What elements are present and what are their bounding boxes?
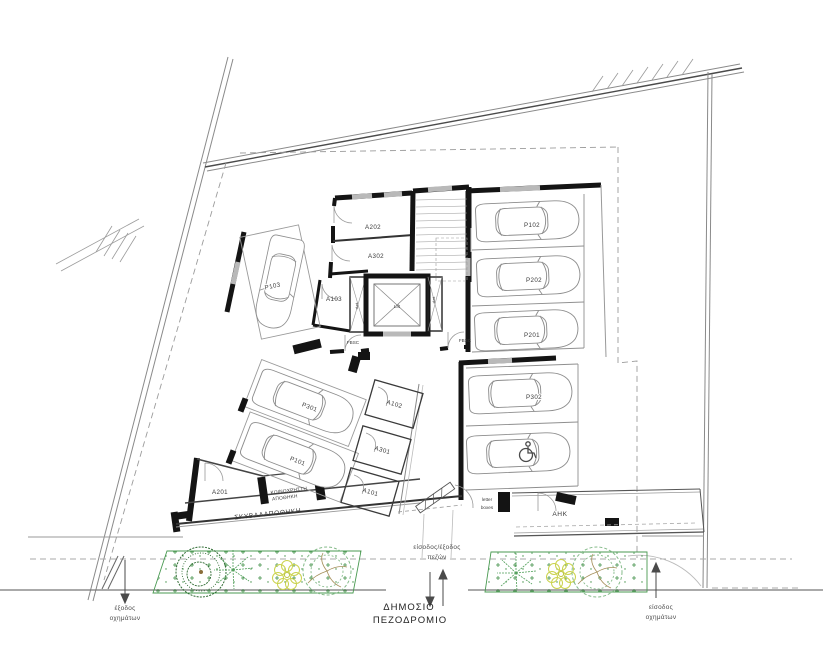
label-a102: A102 [386,399,404,410]
label-duct-right: duct [432,297,436,304]
label-p202: P202 [526,277,542,284]
label-p102: P102 [524,222,540,229]
label-pedestrian-2: πεζών [427,553,446,561]
label-lift: Lift [394,304,401,309]
label-public-sidewalk-2: ΠΕΖΟΔΡΟΜΙΟ [373,615,447,626]
plan-svg: A202 A302 A103 A102 A301 A101 A201 Lift … [0,0,823,667]
label-a202: A202 [365,224,381,231]
floor-plan-drawing: A202 A302 A103 A102 A301 A101 A201 Lift … [0,0,823,667]
label-vehicle-entry-2: οχημάτων [646,613,677,621]
car-p302 [468,372,573,414]
label-vehicle-exit-1: έξοδος [114,604,135,612]
label-pedestrian-1: είσοδος/έξοδος [413,543,460,551]
label-fbsc-left: FBSC [347,340,360,345]
label-vehicle-exit-2: οχημάτων [110,614,141,622]
label-electricity-room: ΑΗΚ [552,511,567,518]
label-garbage-storage: ΣΚΥΒΑΛΑΠΟΘΗΚΗ [234,508,302,522]
label-a201: A201 [212,489,228,496]
staircase [416,199,467,281]
label-p302: P302 [526,394,542,401]
building-walls [171,185,704,536]
label-letter-boxes-1: letter [482,497,493,502]
car-accessible [466,432,571,474]
label-duct-left: duct [355,303,359,310]
label-fbsc-right: FBSC [459,338,472,343]
label-p201: P201 [524,332,540,339]
label-a103: A103 [326,296,342,303]
label-a302: A302 [368,253,384,260]
label-letter-boxes-2: boxes [481,505,494,510]
label-a301: A301 [374,445,392,456]
street-lines [0,510,823,590]
label-vehicle-entry-1: είσοδος [649,603,673,611]
label-public-sidewalk-1: ΔΗΜΟΣΙΟ [383,602,434,613]
site-boundary-lines [56,57,744,601]
car-p201 [474,309,579,351]
label-a101: A101 [362,487,380,498]
